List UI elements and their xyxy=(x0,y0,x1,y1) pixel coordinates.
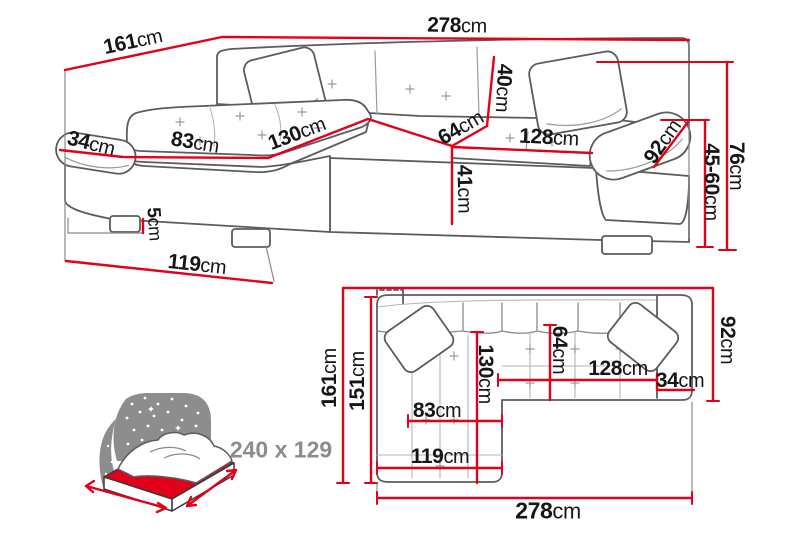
dim-unit: cm xyxy=(347,351,369,377)
dim-value: 130 xyxy=(474,344,497,378)
dim-top-128: 128cm xyxy=(588,358,648,380)
dim-value: 128 xyxy=(519,124,554,149)
dim-unit: cm xyxy=(461,15,487,37)
dim-top-92: 92cm xyxy=(716,316,738,364)
dim-unit: cm xyxy=(135,25,165,52)
dim-value: 45-60 xyxy=(700,143,723,195)
dim-perspective-34: 34cm xyxy=(65,128,117,161)
dim-unit: cm xyxy=(319,348,341,374)
dim-top-278: 278cm xyxy=(515,500,581,523)
dim-unit: cm xyxy=(552,127,579,150)
dim-value: 278 xyxy=(427,14,461,38)
dim-top-83: 83cm xyxy=(413,400,461,422)
dim-unit: cm xyxy=(435,400,461,422)
dim-unit: cm xyxy=(199,254,227,279)
dim-value: 76 xyxy=(725,142,748,165)
dim-perspective-5: 5cm xyxy=(143,207,164,242)
dim-unit: cm xyxy=(144,217,166,242)
dim-perspective-64: 64cm xyxy=(435,106,488,149)
dim-perspective-40: 40cm xyxy=(491,63,515,112)
dim-unit: cm xyxy=(548,348,570,374)
sleeping-area-size-label: 240 x 129 xyxy=(230,439,332,462)
dim-perspective-92: 92cm xyxy=(640,116,686,168)
dim-top-161: 161cm xyxy=(319,348,341,408)
dim-value: 34 xyxy=(656,369,679,392)
dim-unit: cm xyxy=(716,338,738,364)
dim-unit: cm xyxy=(443,446,469,468)
dim-unit: cm xyxy=(678,370,704,392)
dim-perspective-41: 41cm xyxy=(453,165,476,214)
dimension-labels: 161cm 278cm 40cm 64cm 128cm 92cm 41cm 76… xyxy=(0,0,800,533)
dim-value: 128 xyxy=(588,357,622,380)
sofa-dimensions-diagram: 161cm 278cm 40cm 64cm 128cm 92cm 41cm 76… xyxy=(0,0,800,533)
dim-unit: cm xyxy=(491,86,514,113)
dim-value: 151 xyxy=(346,377,369,411)
dim-perspective-130: 130cm xyxy=(265,113,329,155)
dim-unit: cm xyxy=(192,132,221,158)
dim-unit: cm xyxy=(552,499,580,524)
dim-perspective-119: 119cm xyxy=(167,251,227,279)
dim-perspective-83: 83cm xyxy=(169,128,220,157)
dim-value: 161 xyxy=(318,374,341,408)
dim-value: 41 xyxy=(453,165,476,188)
dim-value: 64 xyxy=(548,326,571,349)
dim-unit: cm xyxy=(622,358,648,380)
dim-value: 161 xyxy=(101,29,139,59)
dim-unit: cm xyxy=(725,164,747,190)
dim-perspective-161: 161cm xyxy=(102,25,165,59)
dim-unit: cm xyxy=(700,195,722,221)
dim-value: 278 xyxy=(515,498,552,524)
dim-perspective-278: 278cm xyxy=(427,15,487,38)
dim-value: 119 xyxy=(167,250,202,276)
dim-top-130: 130cm xyxy=(474,344,496,404)
dim-perspective-45-60: 45-60cm xyxy=(700,143,722,221)
dim-top-119: 119cm xyxy=(411,446,469,468)
dim-top-64: 64cm xyxy=(548,326,570,374)
dim-unit: cm xyxy=(87,133,117,161)
dim-unit: cm xyxy=(474,378,496,404)
dim-perspective-76: 76cm xyxy=(725,142,747,190)
dim-perspective-128: 128cm xyxy=(519,125,580,150)
dim-top-151: 151cm xyxy=(347,351,369,411)
dim-value: 40 xyxy=(492,63,516,87)
dim-value: 119 xyxy=(411,445,444,468)
dim-value: 83 xyxy=(413,399,436,422)
dim-top-34: 34cm xyxy=(656,370,704,392)
dim-value: 92 xyxy=(716,316,739,339)
dim-unit: cm xyxy=(453,187,475,213)
